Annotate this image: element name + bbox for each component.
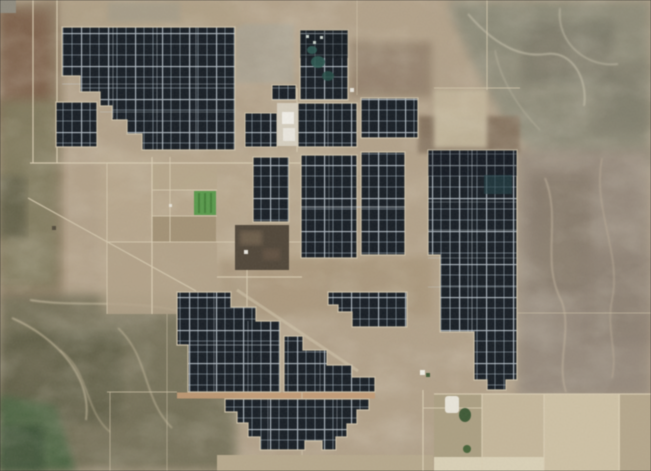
terrain-and-features-layer [0,0,651,471]
photo-grain-light [0,0,651,471]
satellite-image-viewport [0,0,651,471]
solar-farm-satellite-image [0,0,651,471]
